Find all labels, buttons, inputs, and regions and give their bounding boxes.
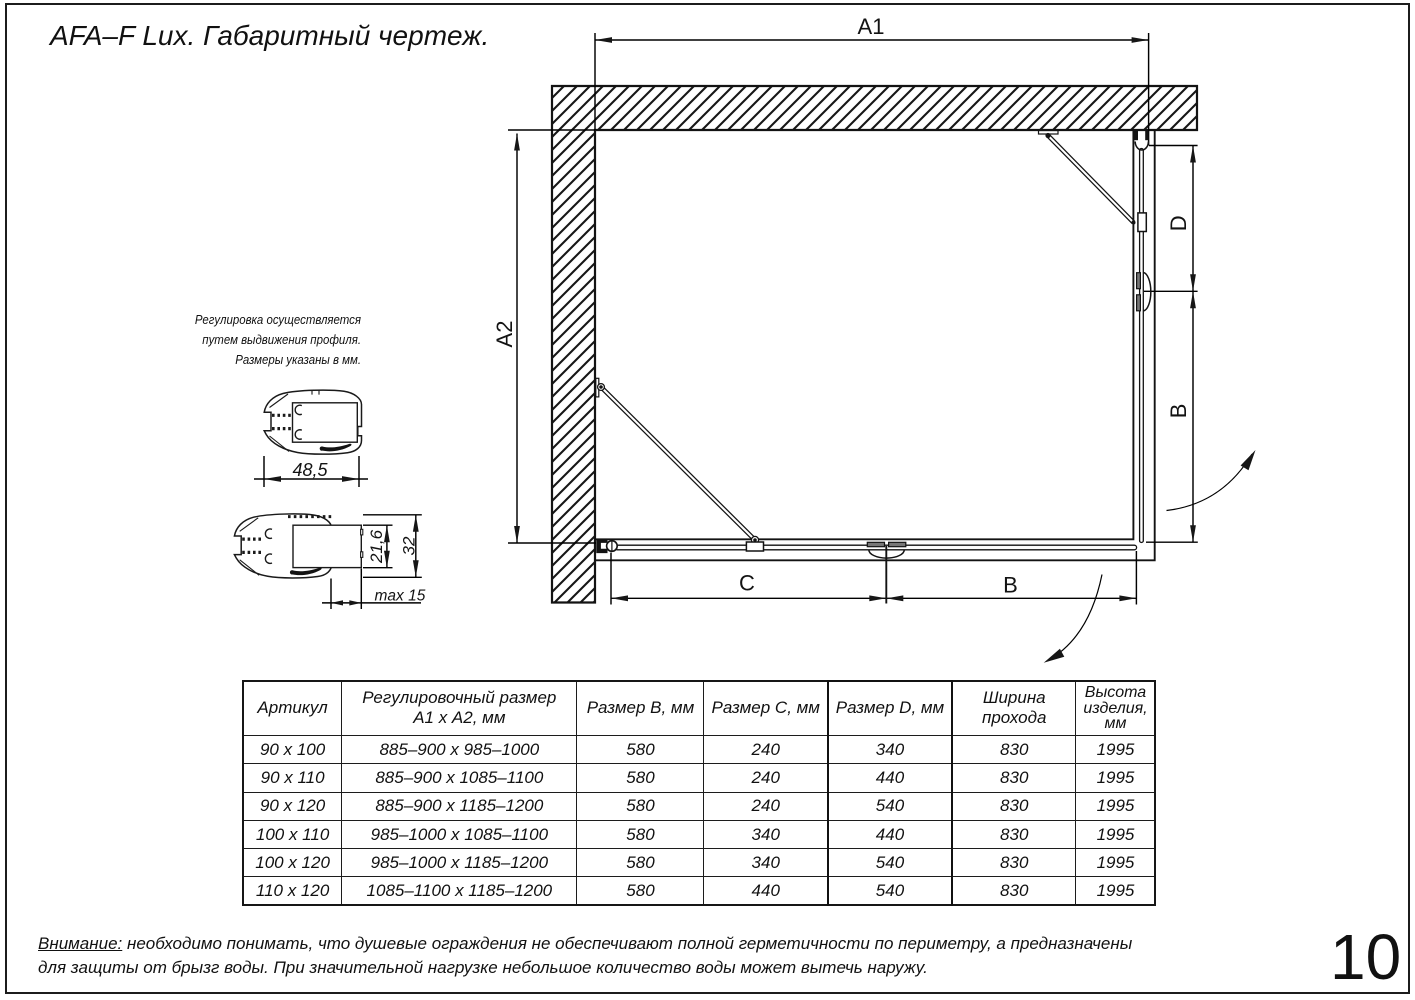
svg-text:B: B	[1003, 573, 1018, 598]
svg-text:48,5: 48,5	[292, 460, 328, 480]
svg-text:C: C	[739, 571, 755, 596]
svg-text:A1: A1	[858, 14, 885, 39]
svg-text:D: D	[1166, 215, 1191, 231]
svg-text:B: B	[1166, 404, 1191, 419]
svg-text:A2: A2	[492, 321, 517, 348]
svg-text:max 15: max 15	[375, 588, 426, 605]
svg-text:32: 32	[400, 536, 419, 555]
svg-text:21,6: 21,6	[367, 529, 386, 564]
